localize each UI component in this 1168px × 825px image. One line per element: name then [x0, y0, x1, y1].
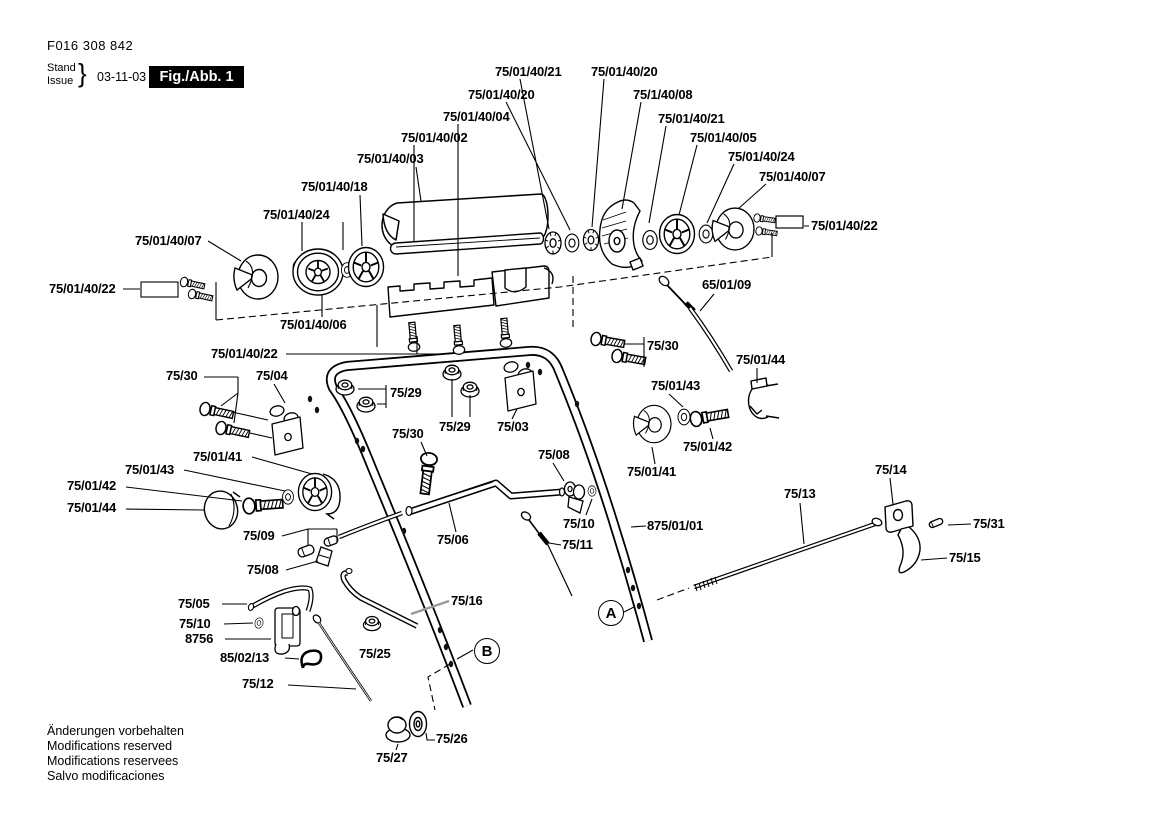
part-label: 75/14 — [875, 462, 907, 477]
part-label: 75/01/40/24 — [263, 207, 329, 222]
part-label: 75/29 — [390, 385, 422, 400]
part-label: 75/25 — [359, 646, 391, 661]
part-label: 75/01/44 — [736, 352, 785, 367]
part-label: 75/01/40/22 — [811, 218, 877, 233]
part-label: 75/01/40/22 — [49, 281, 115, 296]
part-label: 75/01/40/21 — [658, 111, 724, 126]
part-label: 75/27 — [376, 750, 408, 765]
part-label: 75/01/43 — [125, 462, 174, 477]
bracket-75-04 — [269, 404, 303, 455]
figure-label: Fig./Abb. 1 — [149, 66, 244, 88]
part-label: 75/01/40/20 — [591, 64, 657, 79]
part-label: 75/01/40/07 — [135, 233, 201, 248]
parts-diagram-page: F016 308 842 Stand Issue } 03-11-03 Fig.… — [0, 0, 1168, 825]
document-number: F016 308 842 — [47, 38, 133, 53]
fittings-75-09 — [297, 513, 402, 566]
part-label: 75/01/43 — [651, 378, 700, 393]
part-label: 75/31 — [973, 516, 1005, 531]
part-label: 75/10 — [563, 516, 595, 531]
part-label: 85/02/13 — [220, 650, 269, 665]
part-label: 75/01/40/22 — [211, 346, 277, 361]
issue-date: 03-11-03 — [97, 70, 146, 84]
long-screw-75-30 — [417, 452, 438, 495]
clamp-75-08-center — [565, 482, 585, 513]
roller-housing — [388, 266, 553, 317]
modification-notice: Änderungen vorbehalten Modifications res… — [47, 724, 184, 784]
part-label: 75/08 — [247, 562, 279, 577]
rod-75-13 — [694, 517, 883, 591]
part-label: 75/12 — [242, 676, 274, 691]
part-label: 75/01/40/24 — [728, 149, 794, 164]
part-label: 75/08 — [538, 447, 570, 462]
part-label: 875/01/01 — [647, 518, 703, 533]
trigger-lever — [885, 501, 920, 573]
part-label: 75/16 — [451, 593, 483, 608]
part-label: 75/01/42 — [683, 439, 732, 454]
cover-disc-75-01-44-left — [201, 488, 241, 532]
part-label: 65/01/09 — [702, 277, 751, 292]
part-label: 75/04 — [256, 368, 288, 383]
clutch-shell-left — [234, 255, 278, 299]
cam-lever — [600, 200, 644, 270]
part-label: 75/10 — [179, 616, 211, 631]
part-label: 75/01/40/04 — [443, 109, 509, 124]
part-label: 75/01/40/07 — [759, 169, 825, 184]
part-label: 75/01/41 — [627, 464, 676, 479]
capnut-75-27 — [386, 717, 410, 742]
part-label: 75/1/40/08 — [633, 87, 692, 102]
washer-75-26 — [410, 712, 427, 737]
part-label: 75/05 — [178, 596, 210, 611]
bracket-75-03 — [503, 360, 536, 411]
part-label: 75/01/40/06 — [280, 317, 346, 332]
part-label: 75/30 — [647, 338, 679, 353]
part-label: 8756 — [185, 631, 213, 646]
view-marker-b: B — [474, 638, 500, 664]
part-label: 75/13 — [784, 486, 816, 501]
pin-75-31 — [928, 518, 943, 529]
part-label: 75/03 — [497, 419, 529, 434]
part-label: 75/01/40/18 — [301, 179, 367, 194]
part-label: 75/01/44 — [67, 500, 116, 515]
exploded-parts-drawing — [0, 0, 1168, 825]
part-label: 75/01/42 — [67, 478, 116, 493]
clutch-shell-right — [712, 208, 754, 250]
latch-8756 — [275, 607, 300, 655]
stand-issue-label: Stand Issue — [47, 62, 76, 88]
strap-75-01-44-right — [749, 378, 782, 419]
part-label: 75/11 — [562, 537, 593, 552]
part-label: 75/01/40/21 — [495, 64, 561, 79]
part-label: 75/30 — [166, 368, 198, 383]
part-label: 75/15 — [949, 550, 981, 565]
part-label: 75/01/41 — [193, 449, 242, 464]
part-label: 75/30 — [392, 426, 424, 441]
ring-pulley — [349, 248, 384, 287]
stop-lever-75-16 — [343, 569, 417, 627]
part-label: 75/01/40/05 — [690, 130, 756, 145]
tire-pulley — [293, 249, 343, 295]
part-label: 75/29 — [439, 419, 471, 434]
part-label: 75/01/40/03 — [357, 151, 423, 166]
screw-icon — [187, 289, 213, 303]
part-label: 75/06 — [437, 532, 469, 547]
part-label: 75/09 — [243, 528, 275, 543]
brace-glyph: } — [78, 58, 87, 89]
view-marker-a: A — [598, 600, 624, 626]
part-label: 75/01/40/02 — [401, 130, 467, 145]
clip-85-02-13 — [302, 651, 322, 668]
part-label: 75/26 — [436, 731, 468, 746]
part-label: 75/01/40/20 — [468, 87, 534, 102]
